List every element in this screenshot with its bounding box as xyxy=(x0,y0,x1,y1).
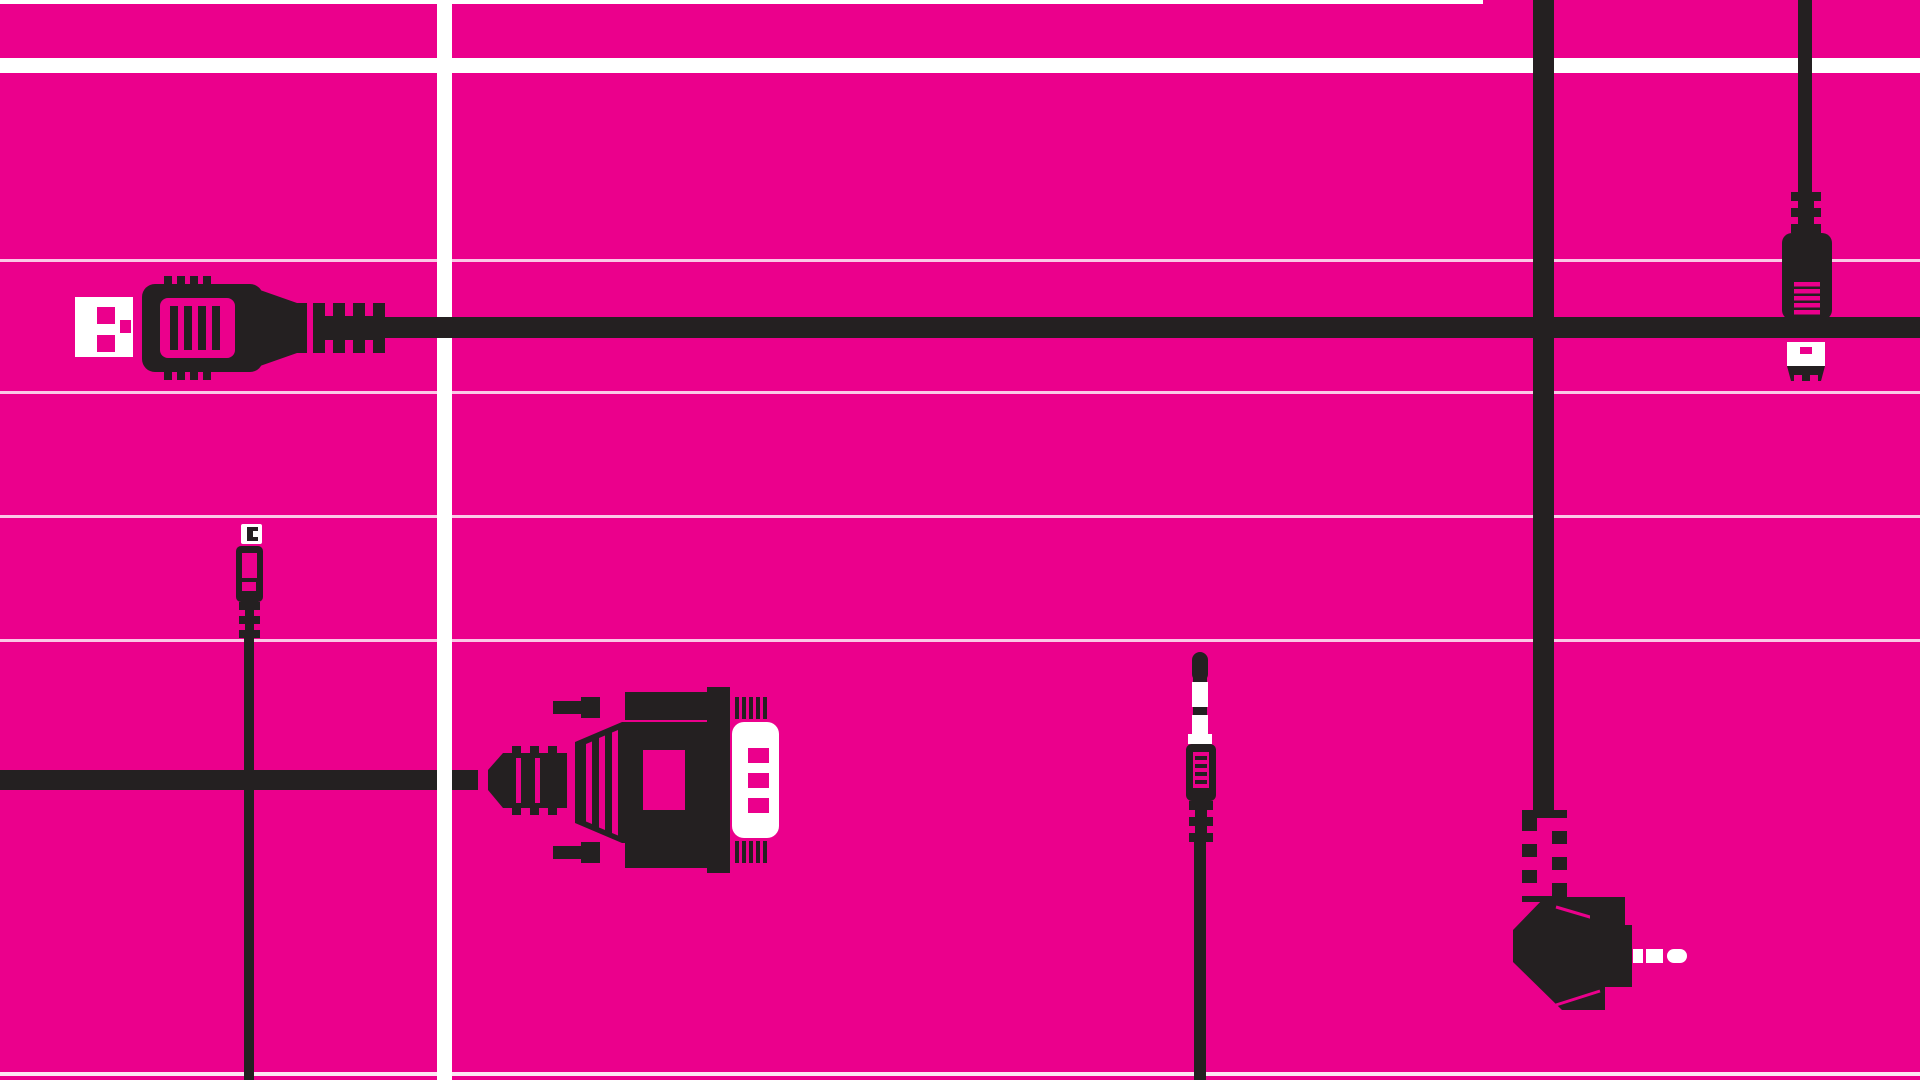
power-plug-tip xyxy=(1633,949,1643,963)
grid-line-bottom xyxy=(0,1072,1920,1076)
usb-a-plug xyxy=(60,272,390,384)
vga-face-plate xyxy=(707,687,730,873)
grid-band-upper xyxy=(0,58,1920,73)
right-angle-power-plug xyxy=(1500,780,1700,1025)
vga-boot xyxy=(488,753,567,808)
grid-line-2 xyxy=(0,391,1920,394)
mini-usb-cable xyxy=(244,634,254,1080)
usb-a-boot xyxy=(260,290,307,366)
power-plug-cable xyxy=(1533,0,1554,812)
grid-line-4 xyxy=(0,639,1920,642)
vga-serial-plug xyxy=(470,680,790,880)
mini-usb-plug-left xyxy=(230,518,270,640)
grid-line-top xyxy=(0,0,1483,4)
illustration-canvas xyxy=(0,0,1920,1080)
serial-plug-cable xyxy=(0,770,478,790)
audio-jack-collar xyxy=(1188,734,1212,744)
grid-line-1 xyxy=(0,259,1920,262)
micro-usb-cable xyxy=(1798,0,1812,192)
audio-jack-cable xyxy=(1194,840,1206,1080)
grid-line-3 xyxy=(0,515,1920,518)
micro-usb-plug-right xyxy=(1775,185,1839,385)
audio-jack-plug xyxy=(1180,645,1224,845)
usb-a-cable xyxy=(380,317,1920,338)
grid-bar-vertical xyxy=(437,0,452,1080)
